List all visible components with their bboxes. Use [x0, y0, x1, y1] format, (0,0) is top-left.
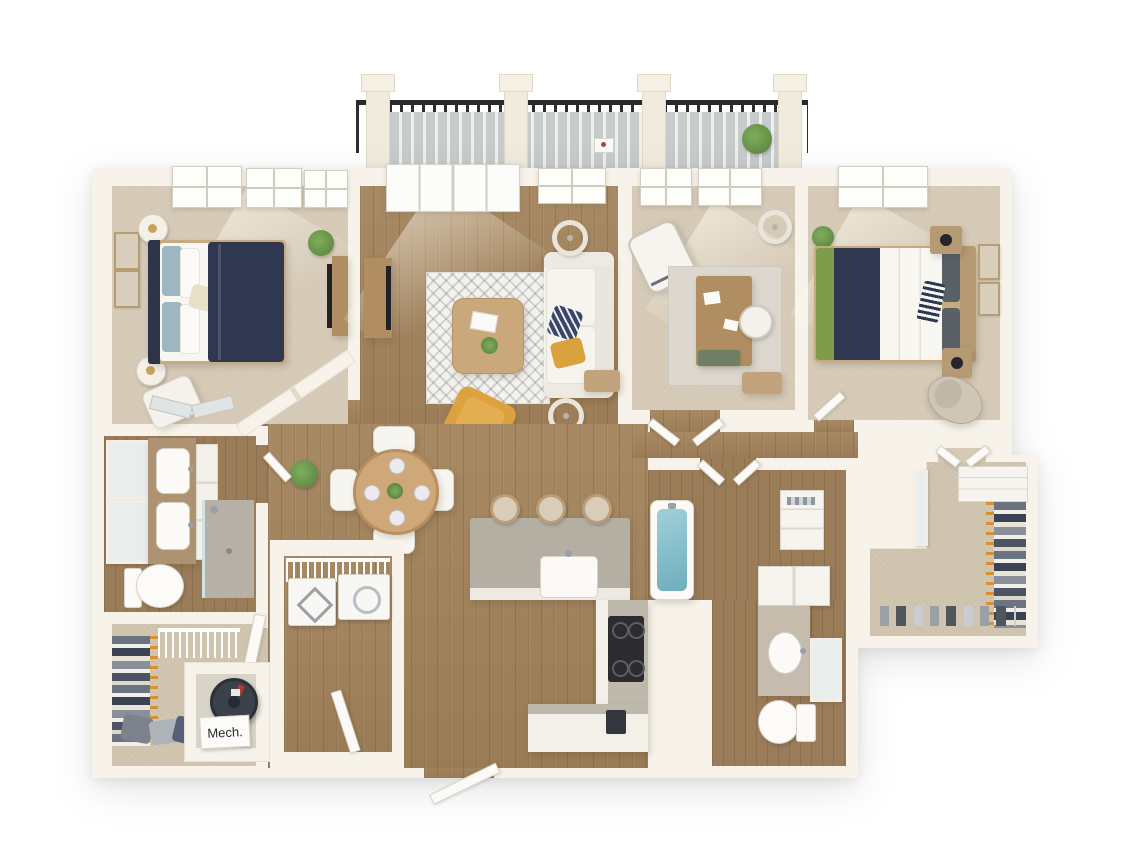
plate — [389, 458, 405, 474]
coffee-maker — [606, 710, 626, 734]
centerpiece-plant — [387, 483, 403, 499]
faucet — [188, 522, 194, 528]
range-cooktop — [608, 616, 644, 682]
closet-shelf — [958, 466, 1028, 502]
toilet-bowl — [758, 700, 800, 744]
window — [640, 168, 692, 206]
double-vanity-counter — [148, 438, 196, 564]
tv-screen — [327, 264, 332, 328]
living-room — [360, 186, 618, 452]
washer — [288, 578, 336, 626]
office-chair — [739, 305, 773, 339]
bed — [814, 246, 976, 362]
counter-cabinet-front — [596, 600, 608, 704]
wire-shelf — [158, 628, 240, 658]
shower-glass — [202, 500, 205, 598]
window — [698, 168, 762, 206]
window — [538, 168, 606, 204]
side-chair — [584, 370, 620, 392]
pillow-teal — [162, 302, 182, 352]
bed-headboard — [148, 240, 160, 364]
table-lamp — [148, 224, 157, 233]
bed-headboard — [960, 246, 976, 362]
bathroom-1 — [104, 436, 256, 612]
bed — [148, 240, 286, 364]
paper — [723, 319, 739, 332]
floor-lamp — [552, 220, 588, 256]
wall-art — [978, 282, 1000, 316]
dryer-door — [353, 586, 381, 614]
vanity-mirror — [810, 638, 842, 702]
linen-shelves — [780, 490, 824, 550]
kitchen-counter-right — [596, 600, 648, 704]
bath2-vanity — [758, 606, 810, 696]
heater-cap — [228, 696, 240, 708]
sink — [156, 448, 190, 494]
tv-screen — [386, 266, 391, 330]
shower-head — [210, 506, 218, 514]
laundry-closet — [270, 540, 404, 768]
paper — [703, 291, 721, 305]
heater-label-tag — [231, 689, 240, 696]
pillow-teal — [162, 246, 182, 296]
walk-in-shower — [202, 500, 254, 598]
pillow-gray — [942, 250, 960, 302]
book — [470, 311, 499, 333]
floor-plan-render: Mech. — [0, 0, 1125, 844]
potted-plant — [308, 230, 334, 256]
green-bench — [698, 350, 740, 366]
wall-art — [114, 232, 140, 270]
shower-drain — [226, 548, 232, 554]
table-plant — [481, 337, 498, 354]
sink-faucet — [565, 550, 572, 557]
coffee-table — [452, 298, 524, 374]
towels — [787, 497, 815, 505]
wall-art — [114, 270, 140, 308]
toilet-tank — [796, 704, 816, 742]
window — [838, 166, 928, 208]
mech-room-label: Mech. — [199, 715, 251, 750]
potted-plant — [812, 226, 834, 248]
bar-stool — [536, 494, 566, 524]
kitchen-counter-bottom — [528, 704, 648, 752]
side-chair — [742, 372, 782, 394]
hall-plant — [290, 460, 318, 488]
faucet — [800, 648, 806, 654]
pillow-white — [180, 304, 200, 354]
sink — [156, 502, 190, 550]
faucet — [188, 466, 194, 472]
counter-top — [528, 704, 648, 714]
plate — [364, 485, 380, 501]
tub-faucet — [668, 503, 676, 509]
toilet-bowl — [136, 564, 184, 608]
chair-back — [929, 374, 967, 413]
table-lamp-black — [940, 234, 952, 246]
tub-water — [657, 509, 687, 591]
runner-navy — [834, 248, 880, 360]
plate — [389, 510, 405, 526]
sofa-back — [594, 266, 614, 384]
balcony-french-door — [386, 164, 520, 212]
floor-lamp — [758, 210, 792, 244]
media-console — [332, 256, 348, 336]
office-den — [632, 186, 795, 410]
soaking-tub — [650, 500, 694, 600]
blanket-green — [816, 248, 834, 360]
leaning-mirror — [914, 470, 928, 546]
window — [246, 168, 302, 208]
shoe-row — [880, 606, 1016, 626]
bar-stool — [582, 494, 612, 524]
walk-in-closet-right — [870, 462, 1026, 636]
bar-stool — [490, 494, 520, 524]
burner — [612, 622, 629, 639]
burner — [628, 622, 645, 639]
kitchen-island — [470, 518, 630, 600]
duvet-fold — [218, 244, 221, 360]
washer-door — [297, 587, 334, 624]
sink — [768, 632, 802, 674]
window — [172, 166, 242, 208]
wall-art — [978, 244, 1000, 280]
bathroom-2 — [648, 470, 846, 766]
burner — [628, 660, 645, 677]
dryer — [338, 574, 390, 620]
table-lamp — [146, 366, 155, 375]
island-sink — [540, 556, 598, 598]
plate — [414, 485, 430, 501]
burner — [612, 660, 629, 677]
vanity-mirror — [106, 440, 154, 500]
table-lamp-black — [951, 357, 963, 369]
bedroom-2 — [808, 186, 1000, 420]
window — [304, 170, 348, 208]
over-toilet-cabinet — [758, 566, 830, 606]
dining-table — [353, 449, 439, 535]
